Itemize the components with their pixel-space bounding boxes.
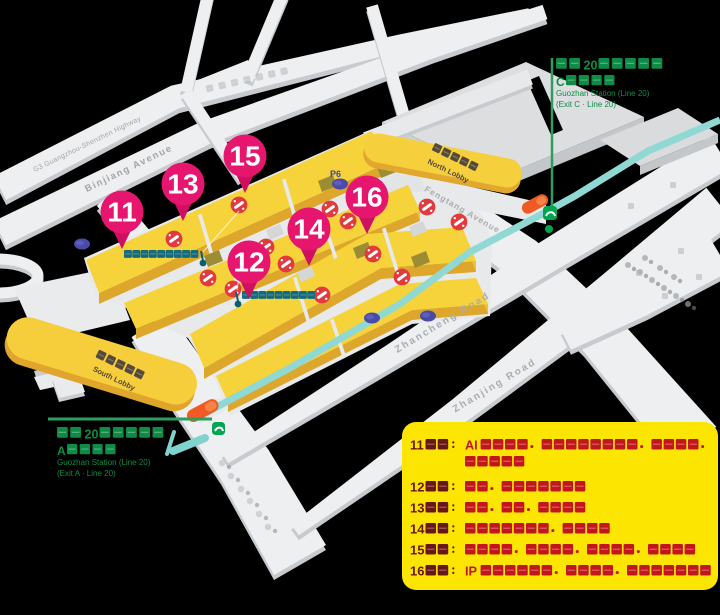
svg-text:AI: AI [465, 439, 478, 453]
svg-text:C: C [556, 75, 565, 89]
svg-text:15: 15 [410, 543, 424, 558]
svg-text:16: 16 [351, 182, 382, 213]
svg-text:(Exit C · Line 20): (Exit C · Line 20) [556, 100, 616, 109]
svg-text:P6: P6 [330, 169, 341, 179]
svg-text:15: 15 [229, 141, 260, 172]
svg-text:13: 13 [167, 169, 198, 200]
svg-text:Guozhan Station (Line 20): Guozhan Station (Line 20) [57, 458, 151, 467]
svg-text:11: 11 [107, 197, 137, 228]
svg-text:16: 16 [410, 564, 424, 579]
svg-text:12: 12 [410, 480, 424, 495]
svg-text:20: 20 [584, 59, 598, 73]
svg-text:14: 14 [293, 214, 325, 245]
svg-text:IP: IP [465, 565, 478, 579]
svg-text:13: 13 [410, 501, 424, 516]
svg-text:20: 20 [85, 428, 99, 442]
svg-text:(Exit A · Line 20): (Exit A · Line 20) [57, 469, 116, 478]
svg-text:A: A [57, 444, 66, 458]
svg-text:11: 11 [410, 438, 424, 453]
svg-text:14: 14 [410, 522, 425, 537]
svg-text:12: 12 [233, 247, 264, 278]
svg-text:Guozhan Station (Line 20): Guozhan Station (Line 20) [556, 89, 650, 98]
